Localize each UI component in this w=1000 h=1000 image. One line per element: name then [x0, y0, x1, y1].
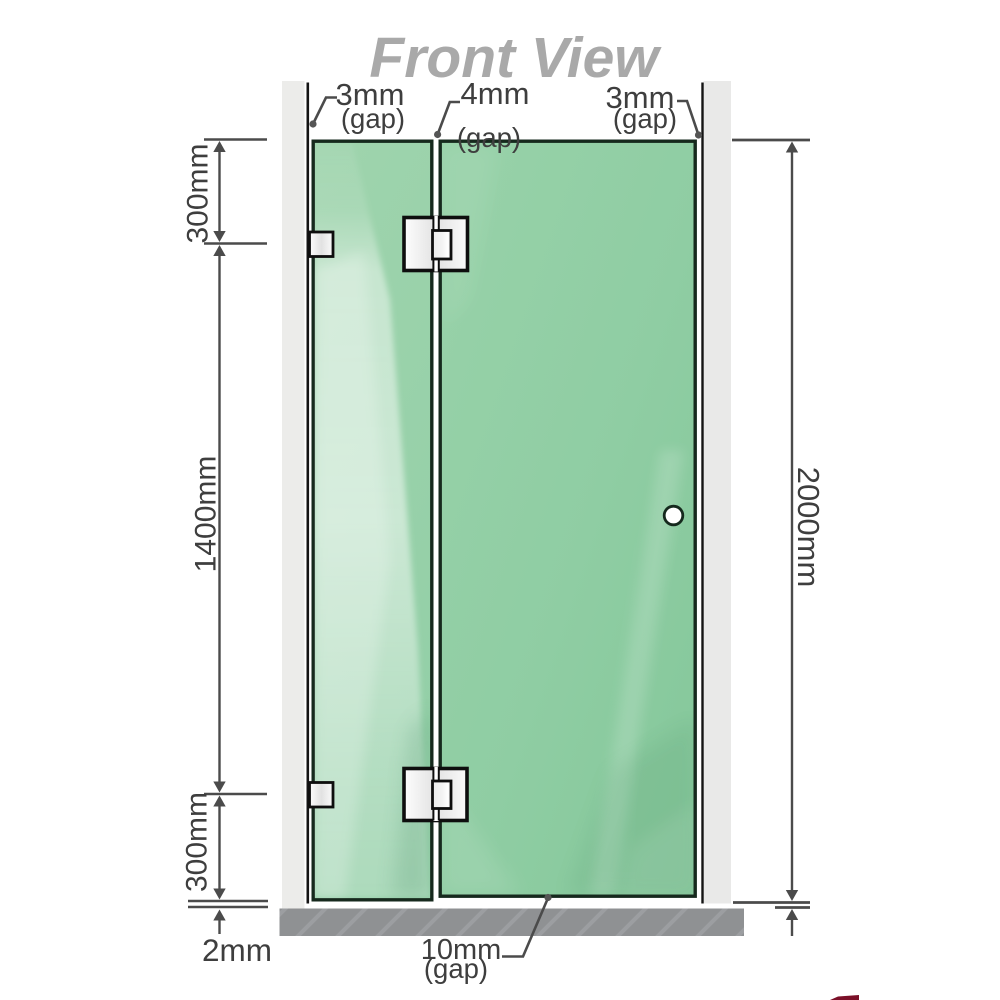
- svg-text:4mm: 4mm: [461, 76, 530, 111]
- svg-text:1400mm: 1400mm: [189, 456, 222, 573]
- svg-text:(gap): (gap): [613, 103, 677, 134]
- svg-text:(gap): (gap): [457, 122, 521, 153]
- svg-text:2mm: 2mm: [202, 932, 272, 968]
- svg-text:2000mm: 2000mm: [791, 467, 826, 588]
- svg-text:300mm: 300mm: [181, 143, 214, 243]
- svg-text:(gap): (gap): [341, 103, 405, 134]
- svg-text:300mm: 300mm: [180, 792, 213, 892]
- svg-text:(gap): (gap): [424, 953, 488, 984]
